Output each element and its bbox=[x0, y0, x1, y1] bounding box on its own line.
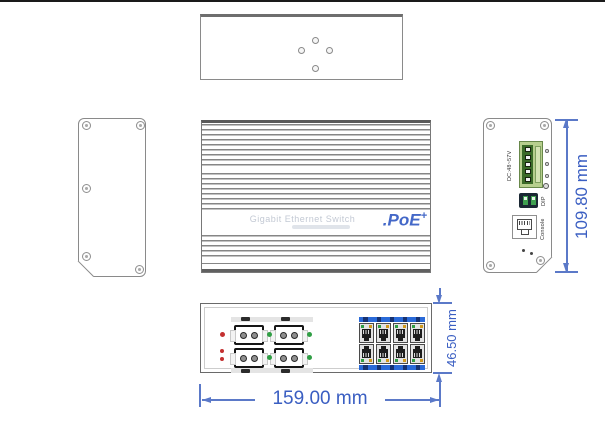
arrow-up-icon bbox=[563, 119, 569, 128]
terminal-screw-icon bbox=[545, 149, 549, 153]
dip-switch-label: DIP bbox=[541, 192, 547, 210]
left-side-view bbox=[78, 118, 146, 277]
power-input-label: DC:48~57V bbox=[507, 143, 513, 189]
arrow-down-icon bbox=[436, 295, 442, 304]
ground-point-icon bbox=[543, 183, 549, 189]
fine-print-smudge bbox=[292, 225, 350, 229]
arrow-left-icon bbox=[202, 397, 211, 403]
console-port-label: Console bbox=[540, 215, 546, 243]
sc-fiber-port bbox=[234, 325, 264, 345]
heatsink-fins bbox=[202, 173, 430, 210]
port-number-label bbox=[241, 369, 250, 373]
terminal-screw-icon bbox=[545, 162, 549, 166]
screw-icon bbox=[82, 121, 91, 130]
rj45-port bbox=[376, 323, 391, 343]
port-label-strip bbox=[231, 317, 313, 322]
panel-groove-line bbox=[202, 263, 430, 264]
rj45-port bbox=[359, 344, 374, 364]
brand-text: Gigabit Ethernet Switch bbox=[240, 214, 365, 224]
screw-icon bbox=[135, 265, 144, 274]
screw-icon bbox=[486, 261, 495, 270]
mounting-hole-icon bbox=[312, 65, 319, 72]
extension-line bbox=[199, 384, 200, 407]
alarm-led-icon bbox=[220, 357, 224, 361]
screw-icon bbox=[82, 252, 91, 261]
top-view bbox=[200, 14, 403, 80]
power-terminal-block bbox=[519, 141, 543, 188]
screw-icon bbox=[540, 121, 549, 130]
rj45-port bbox=[393, 344, 408, 364]
link-led-icon bbox=[267, 332, 272, 337]
poe-logo-text: .PoE bbox=[383, 211, 421, 230]
alarm-led-icon bbox=[220, 349, 224, 353]
sc-fiber-port bbox=[274, 348, 304, 368]
dip-switch bbox=[519, 193, 538, 208]
led-icon bbox=[530, 252, 533, 255]
terminal-screw-icon bbox=[545, 174, 549, 178]
rj45-port-row bbox=[359, 323, 425, 343]
mounting-hole-icon bbox=[312, 37, 319, 44]
port-number-label bbox=[281, 369, 290, 373]
depth-dimension-label: 46.50 mm bbox=[444, 302, 459, 374]
screw-icon bbox=[486, 121, 495, 130]
mounting-hole-icon bbox=[326, 47, 333, 54]
heatsink-fins bbox=[202, 124, 430, 167]
rj45-port bbox=[393, 323, 408, 343]
dimensional-drawing: Gigabit Ethernet Switch .PoE+ DC:48~57V bbox=[0, 0, 605, 423]
heatsink-fins bbox=[202, 235, 430, 258]
rj45-port bbox=[410, 344, 425, 364]
mounting-hole-icon bbox=[298, 47, 305, 54]
link-led-icon bbox=[267, 355, 272, 360]
rj45-port bbox=[410, 323, 425, 343]
width-dimension-label: 159.00 mm bbox=[255, 388, 385, 410]
sc-fiber-port bbox=[234, 348, 264, 368]
arrow-right-icon bbox=[430, 397, 439, 403]
label-band: Gigabit Ethernet Switch .PoE+ bbox=[202, 210, 430, 233]
port-number-label bbox=[281, 317, 290, 321]
port-label-strip bbox=[231, 368, 313, 373]
rj45-port-row bbox=[359, 344, 425, 364]
console-port bbox=[512, 215, 537, 239]
led-icon bbox=[522, 249, 525, 252]
terminal-flange bbox=[535, 146, 541, 183]
port-id-bar bbox=[359, 365, 425, 370]
screw-icon bbox=[536, 256, 545, 265]
screw-icon bbox=[82, 184, 91, 193]
front-bottom-edge bbox=[202, 269, 430, 272]
arrow-down-icon bbox=[563, 263, 569, 272]
depth-dimension-line bbox=[439, 382, 440, 407]
port-id-bar bbox=[359, 317, 425, 322]
rj45-port bbox=[376, 344, 391, 364]
height-dimension-label: 109.80 mm bbox=[572, 128, 592, 264]
port-number-label bbox=[241, 317, 250, 321]
front-view: Gigabit Ethernet Switch .PoE+ bbox=[201, 120, 431, 273]
terminal-slots bbox=[522, 145, 533, 184]
right-side-view: DC:48~57V DIP Console bbox=[483, 118, 552, 273]
poe-logo: .PoE+ bbox=[383, 210, 427, 231]
console-jack-tab bbox=[521, 230, 529, 235]
top-border-line bbox=[0, 0, 605, 2]
screw-icon bbox=[136, 121, 145, 130]
poe-plus-sign: + bbox=[421, 210, 427, 222]
bottom-view bbox=[200, 303, 432, 373]
arrow-up-icon bbox=[436, 373, 442, 382]
link-led-icon bbox=[307, 332, 312, 337]
power-led-icon bbox=[220, 332, 225, 337]
chamfer-corner bbox=[62, 261, 94, 293]
console-jack bbox=[517, 219, 532, 230]
rj45-port bbox=[359, 323, 374, 343]
link-led-icon bbox=[307, 355, 312, 360]
sc-fiber-port bbox=[274, 325, 304, 345]
height-dimension-line bbox=[566, 121, 567, 271]
